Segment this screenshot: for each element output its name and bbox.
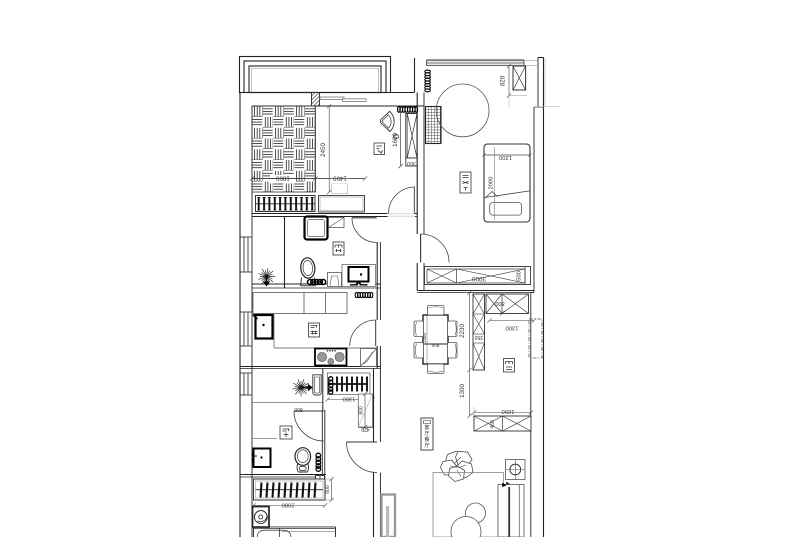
svg-text:1200: 1200 (499, 154, 512, 160)
svg-text:600: 600 (325, 485, 331, 494)
svg-text:500: 500 (517, 271, 523, 281)
svg-text:1400: 1400 (333, 175, 347, 182)
svg-text:800: 800 (495, 300, 504, 306)
svg-text:1300: 1300 (343, 396, 356, 402)
svg-text:客: 客 (424, 423, 429, 431)
svg-text:800: 800 (358, 406, 364, 415)
svg-text:800: 800 (431, 343, 439, 348)
svg-text:餐: 餐 (424, 435, 430, 443)
svg-text:厅: 厅 (424, 442, 429, 449)
svg-text:1650: 1650 (502, 408, 515, 414)
svg-text:1300: 1300 (506, 325, 519, 331)
svg-text:2450: 2450 (320, 143, 327, 157)
svg-text:3000: 3000 (472, 275, 486, 282)
svg-text:350: 350 (475, 334, 484, 340)
svg-text:420: 420 (361, 426, 370, 432)
svg-text:350: 350 (407, 160, 416, 166)
svg-text:460: 460 (490, 420, 496, 429)
svg-text:1300: 1300 (459, 384, 466, 398)
svg-text:2000: 2000 (489, 177, 495, 190)
svg-text:2080: 2080 (282, 502, 295, 508)
svg-text:厅: 厅 (424, 430, 429, 437)
svg-text:820: 820 (500, 75, 507, 86)
svg-text:2230: 2230 (459, 324, 466, 338)
svg-text:1800: 1800 (276, 175, 290, 182)
svg-text:1600: 1600 (392, 133, 399, 147)
